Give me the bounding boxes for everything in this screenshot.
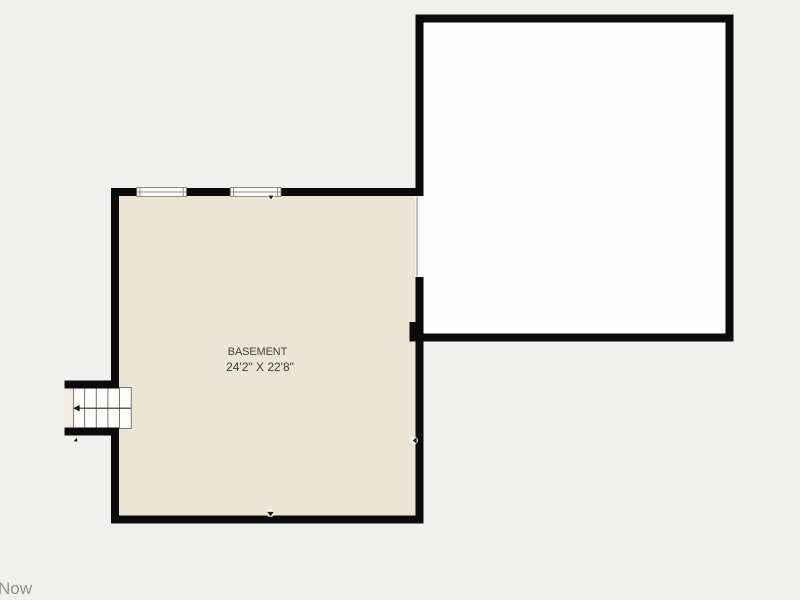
svg-text:Now: Now [0, 579, 33, 598]
svg-text:BASEMENT: BASEMENT [228, 346, 288, 358]
svg-text:24'2" X 22'8": 24'2" X 22'8" [226, 360, 294, 374]
